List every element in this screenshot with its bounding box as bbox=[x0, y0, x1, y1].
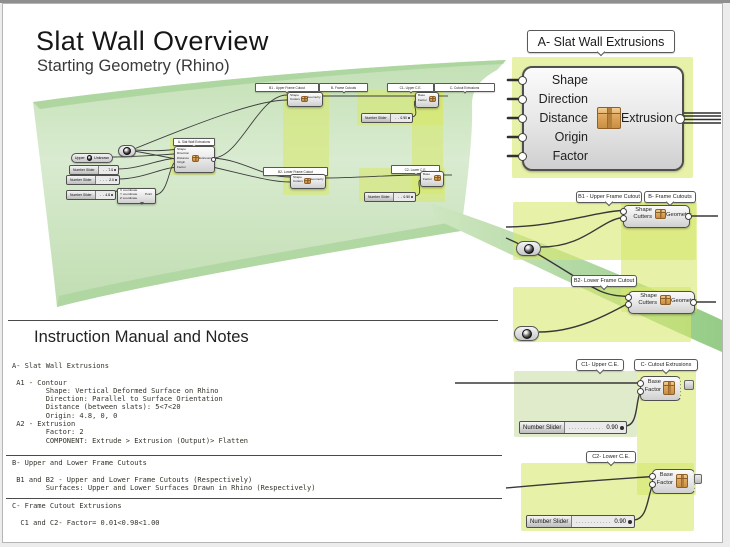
input-label-shape: Shape bbox=[528, 73, 588, 87]
slider-handle[interactable] bbox=[114, 169, 116, 171]
canvas-a-input-factor: Factor bbox=[177, 166, 186, 170]
slider-handle[interactable] bbox=[111, 194, 113, 196]
input-port[interactable] bbox=[620, 208, 627, 215]
extrude-package-icon bbox=[676, 474, 688, 488]
divider bbox=[8, 320, 498, 321]
input-port[interactable] bbox=[625, 301, 632, 308]
extrude-package-icon bbox=[663, 381, 675, 395]
input-port[interactable] bbox=[518, 95, 527, 104]
number-slider[interactable]: Number Slider 4.8 bbox=[66, 190, 116, 200]
output-port[interactable] bbox=[690, 299, 697, 306]
z-coordinate-label: Z coordinate bbox=[120, 197, 137, 201]
input-label-direction: Direction bbox=[528, 92, 588, 106]
page-title: Slat Wall Overview bbox=[36, 26, 269, 57]
extrude-package-icon bbox=[192, 155, 199, 162]
canvas-label-b[interactable]: B- Frame Cutouts bbox=[319, 83, 368, 92]
input-port[interactable] bbox=[637, 388, 644, 395]
geometry-sphere-icon bbox=[524, 244, 534, 254]
cropped-output-stub bbox=[694, 474, 702, 484]
geometry-param-capsule[interactable] bbox=[516, 241, 541, 256]
canvas-a-output-extrusion: Extrusion bbox=[199, 157, 212, 161]
callout-c[interactable]: C- Cutout Extrusions bbox=[634, 359, 698, 371]
input-port[interactable] bbox=[620, 215, 627, 222]
extrude-package-icon bbox=[655, 209, 666, 219]
divider bbox=[6, 498, 502, 499]
geometry-param-capsule[interactable] bbox=[118, 145, 136, 157]
input-label-origin: Origin bbox=[528, 130, 588, 144]
extrude-package-icon bbox=[660, 295, 671, 305]
extrude-package-icon bbox=[429, 96, 436, 103]
slider-handle[interactable] bbox=[115, 179, 117, 181]
geometry-sphere-icon bbox=[123, 147, 131, 155]
input-label-distance: Distance bbox=[528, 111, 588, 125]
canvas-group-a-label: A- Slat Wall Extrusions bbox=[173, 138, 215, 146]
extrude-package-icon bbox=[434, 175, 441, 182]
output-port[interactable] bbox=[685, 213, 692, 220]
surface-param-pill[interactable]: Upper Unknown bbox=[71, 153, 113, 163]
funnel-icon bbox=[140, 192, 144, 210]
callout-c2[interactable]: C2- Lower C.E. bbox=[586, 451, 636, 463]
callout-b2[interactable]: B2- Lower Frame Cutout bbox=[571, 275, 637, 287]
input-port[interactable] bbox=[649, 473, 656, 480]
input-port[interactable] bbox=[518, 114, 527, 123]
canvas-label-c1[interactable]: C1- Upper C.E. bbox=[387, 83, 434, 92]
callout-c1[interactable]: C1- Upper C.E. bbox=[576, 359, 624, 371]
output-port[interactable] bbox=[675, 114, 685, 124]
divider bbox=[6, 455, 502, 456]
number-slider[interactable]: Number Slider 2.0 bbox=[66, 175, 120, 185]
callout-b[interactable]: B- Frame Cutouts bbox=[644, 191, 696, 203]
canvas-label-c[interactable]: C- Cutout Extrusions bbox=[434, 83, 495, 92]
input-port[interactable] bbox=[518, 152, 527, 161]
grasshopper-document-page: { "header": { "title": "Slat Wall Overvi… bbox=[0, 0, 730, 547]
slider-handle[interactable] bbox=[628, 520, 632, 524]
callout-a-slat-wall-extrusions[interactable]: A- Slat Wall Extrusions bbox=[527, 30, 675, 53]
input-port[interactable] bbox=[625, 294, 632, 301]
canvas-label-b1[interactable]: B1 - Upper Frame Cutout bbox=[255, 83, 319, 92]
geometry-sphere-icon bbox=[522, 329, 532, 339]
window-top-edge bbox=[0, 0, 730, 3]
notes-heading: Instruction Manual and Notes bbox=[34, 328, 249, 347]
param-icon bbox=[87, 155, 93, 161]
notes-section-c: C- Frame Cutout Extrusions C1 and C2- Fa… bbox=[12, 502, 160, 527]
slider-handle[interactable] bbox=[620, 426, 624, 430]
geometry-param-capsule[interactable] bbox=[514, 326, 539, 341]
input-port[interactable] bbox=[518, 76, 527, 85]
number-slider[interactable]: Number Slider 0.90 bbox=[519, 421, 627, 434]
number-slider[interactable]: Number Slider 7.0 bbox=[69, 165, 119, 175]
number-slider[interactable]: Number Slider 0.90 bbox=[364, 192, 416, 202]
input-port[interactable] bbox=[649, 481, 656, 488]
output-label-extrusion: Extrusion bbox=[618, 111, 676, 125]
slider-handle[interactable] bbox=[411, 196, 413, 198]
input-label-factor: Factor bbox=[528, 149, 588, 163]
notes-section-b: B- Upper and Lower Frame Cutouts B1 and … bbox=[12, 459, 315, 492]
number-slider[interactable]: Number Slider 0.90 bbox=[526, 515, 635, 528]
input-port[interactable] bbox=[637, 380, 644, 387]
output-port[interactable] bbox=[211, 157, 216, 162]
page-subtitle: Starting Geometry (Rhino) bbox=[37, 57, 230, 76]
point-output-label: Point bbox=[145, 193, 152, 197]
cropped-output-stub bbox=[684, 380, 694, 390]
slider-handle[interactable] bbox=[408, 117, 410, 119]
callout-b1[interactable]: B1 - Upper Frame Cutout bbox=[576, 191, 642, 203]
notes-section-a: A- Slat Wall Extrusions A1 - Contour Sha… bbox=[12, 362, 248, 445]
input-port[interactable] bbox=[518, 133, 527, 142]
number-slider[interactable]: Number Slider 0.90 bbox=[361, 113, 413, 123]
